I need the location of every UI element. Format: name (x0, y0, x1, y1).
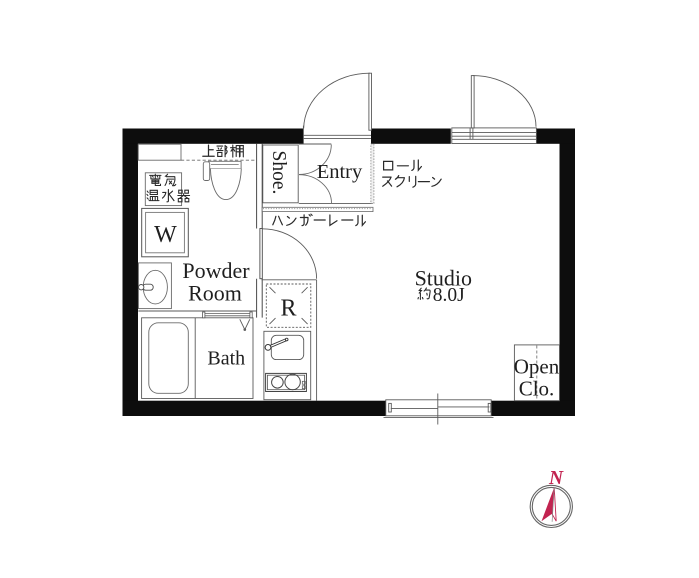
svg-text:Room: Room (188, 281, 242, 306)
svg-text:Open: Open (514, 355, 560, 379)
svg-text:8.0J: 8.0J (433, 285, 465, 306)
svg-text:Clo.: Clo. (519, 377, 555, 401)
svg-text:Powder: Powder (182, 258, 250, 283)
svg-text:R: R (280, 295, 296, 321)
svg-text:W: W (154, 222, 177, 248)
svg-text:N: N (548, 468, 564, 489)
svg-text:Shoe.: Shoe. (268, 151, 289, 195)
svg-text:Entry: Entry (317, 161, 363, 183)
svg-text:Bath: Bath (207, 348, 245, 370)
